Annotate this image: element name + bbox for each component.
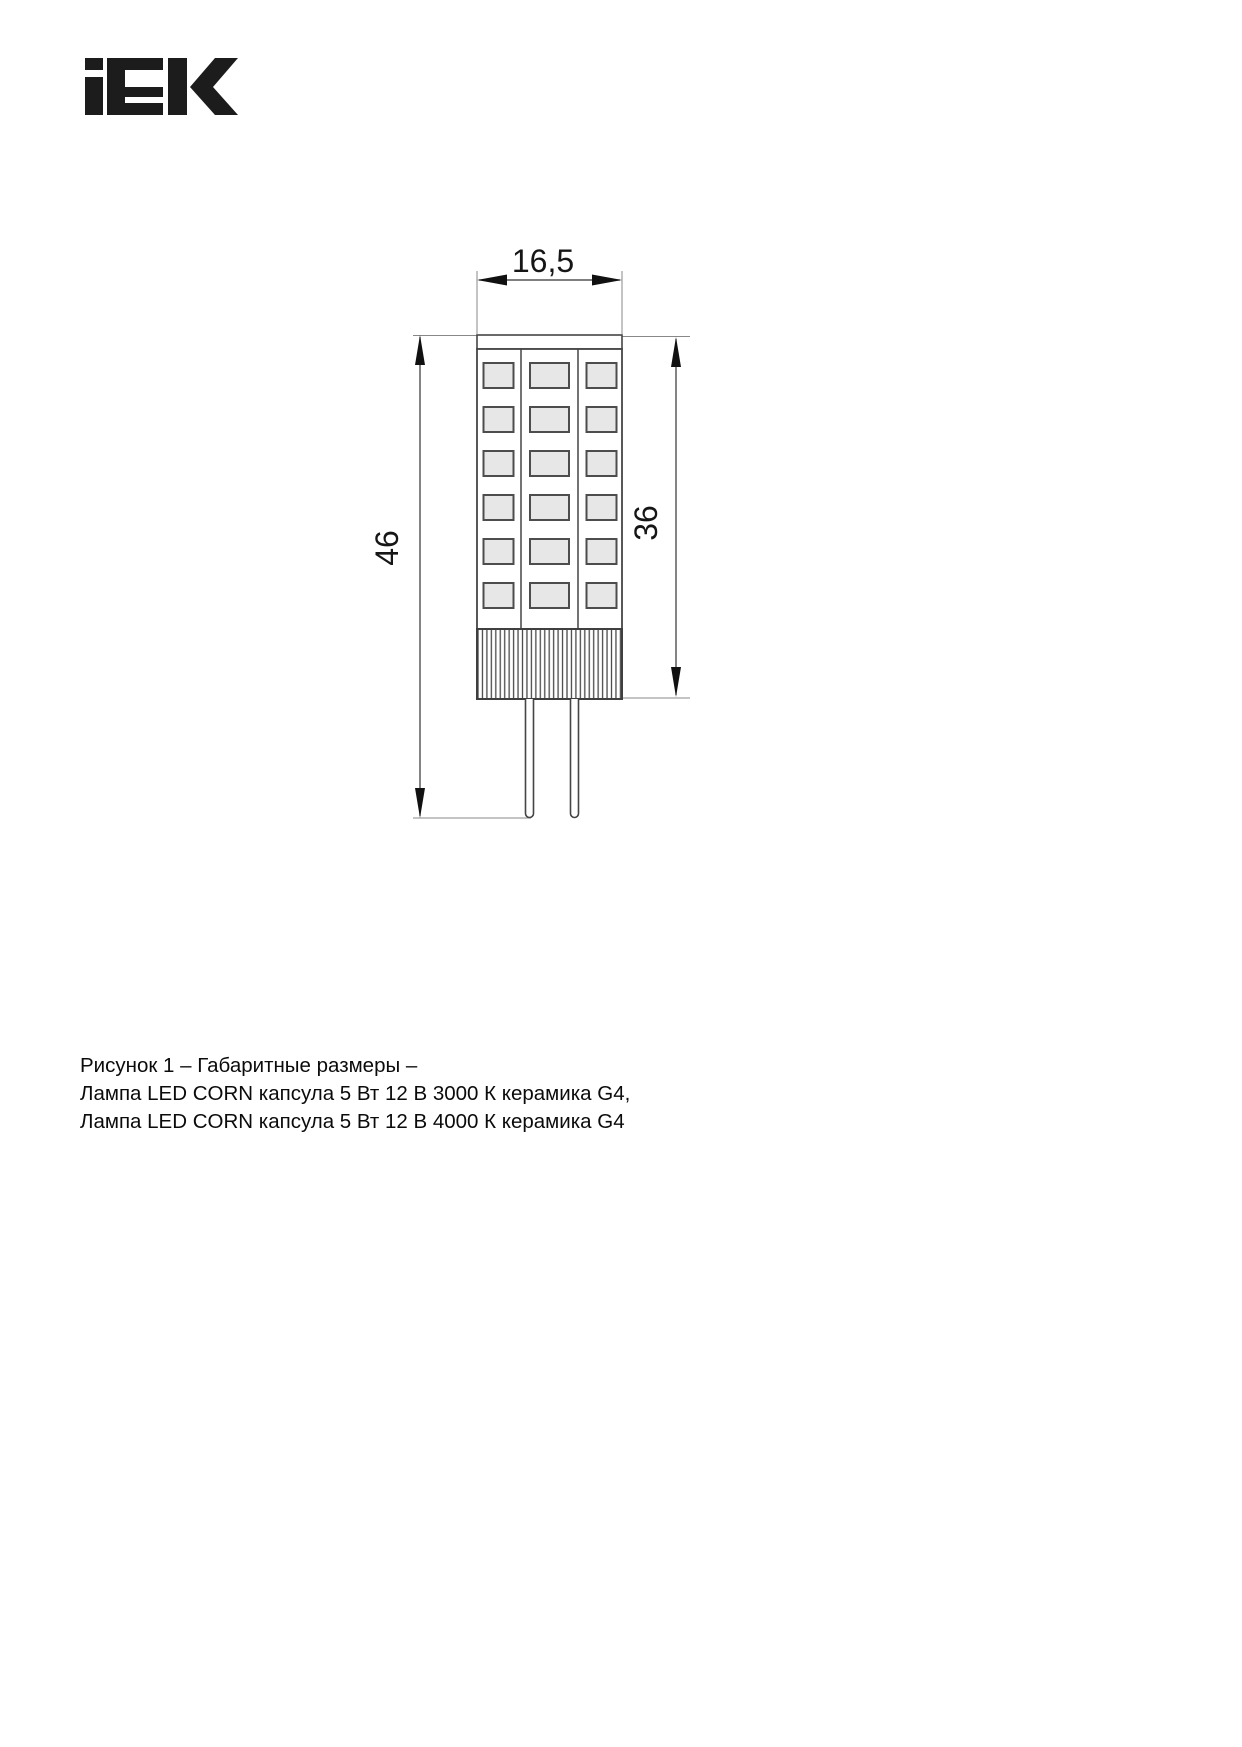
lamp-top-cap (477, 335, 622, 349)
arrowhead-up-icon (415, 335, 425, 365)
figure-caption: Рисунок 1 – Габаритные размеры – Лампа L… (80, 1052, 630, 1136)
caption-line-3: Лампа LED CORN капсула 5 Вт 12 В 4000 К … (80, 1108, 630, 1136)
dim-body-height-label: 36 (628, 505, 664, 541)
lamp-dimension-drawing: 16,5 46 36 (0, 0, 1242, 880)
arrowhead-right-icon (592, 275, 622, 286)
arrowhead-down-icon (415, 788, 425, 818)
lamp-ribbed-base (477, 629, 622, 699)
dim-total-height-label: 46 (369, 530, 405, 566)
document-page: 16,5 46 36 Рисунок 1 – Габаритные размер… (0, 0, 1242, 1747)
caption-line-1: Рисунок 1 – Габаритные размеры – (80, 1052, 630, 1080)
dimension-body-height: 36 (628, 337, 681, 697)
arrowhead-left-icon (477, 275, 507, 286)
arrowhead-up-icon (671, 337, 681, 367)
dim-width-label: 16,5 (512, 243, 574, 279)
arrowhead-down-icon (671, 667, 681, 697)
dimension-total-height: 46 (369, 335, 425, 818)
lamp-body (477, 335, 622, 818)
g4-pins (526, 699, 579, 818)
caption-line-2: Лампа LED CORN капсула 5 Вт 12 В 3000 К … (80, 1080, 630, 1108)
dimension-width: 16,5 (477, 243, 622, 286)
